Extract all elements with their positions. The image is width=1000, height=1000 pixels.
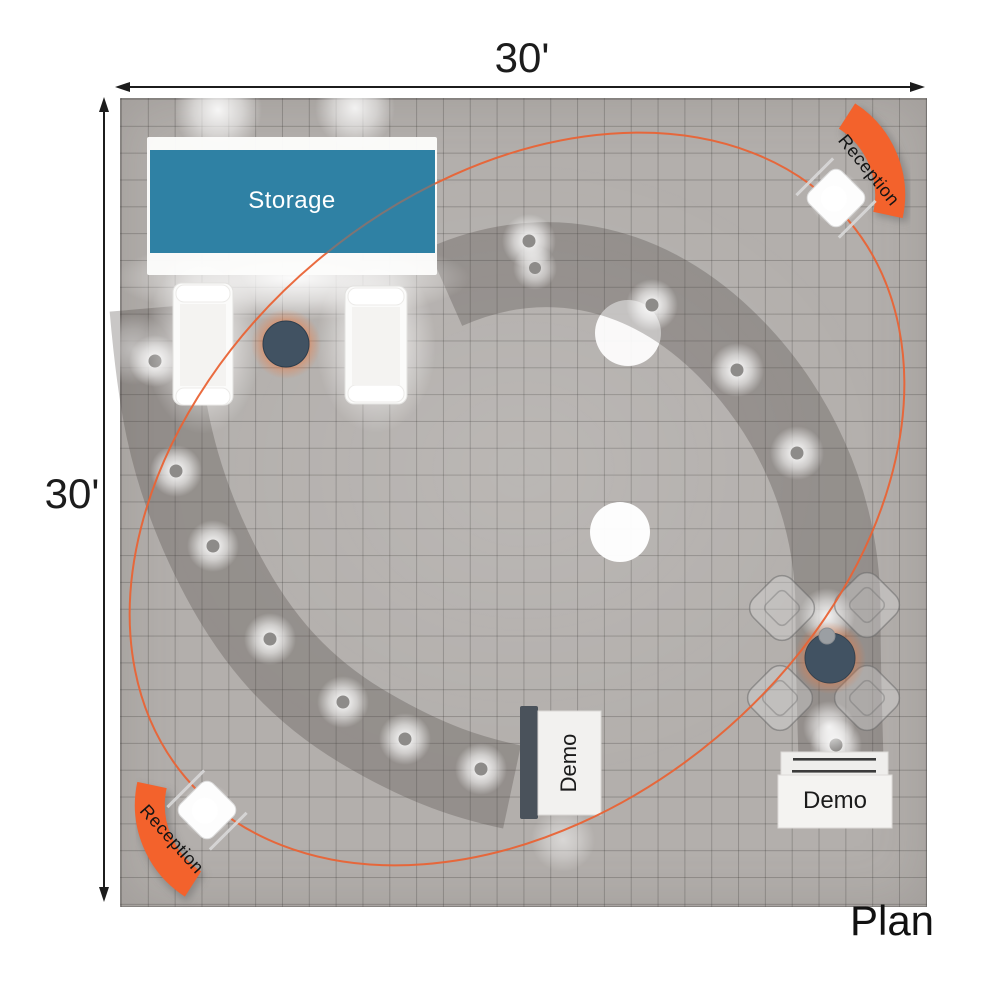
demo-shelf-line bbox=[792, 770, 876, 773]
arrowhead-right-icon bbox=[910, 82, 925, 92]
spotlight-dot bbox=[399, 733, 412, 746]
spotlight-dot bbox=[337, 696, 350, 709]
dimension-line-vertical bbox=[103, 106, 105, 892]
spotlight-dot bbox=[523, 235, 536, 248]
spotlight-dot bbox=[264, 633, 277, 646]
spotlight-dot bbox=[475, 763, 488, 776]
coffee-table-top bbox=[263, 321, 309, 367]
spotlight-dot bbox=[529, 262, 541, 274]
light-disc bbox=[590, 502, 650, 562]
spotlight bbox=[379, 713, 431, 765]
sofa-right bbox=[316, 257, 436, 433]
sofa-seat bbox=[352, 307, 400, 385]
storage-label: Storage bbox=[248, 189, 336, 213]
sofa-left bbox=[145, 254, 261, 434]
spotlight-dot bbox=[731, 364, 744, 377]
demo-right-label: Demo bbox=[803, 789, 867, 813]
wall-glow bbox=[315, 68, 395, 148]
plan-title: Plan bbox=[850, 900, 934, 942]
arrowhead-left-icon bbox=[115, 82, 130, 92]
dimension-line-horizontal bbox=[129, 86, 911, 88]
spotlight bbox=[317, 676, 369, 728]
arrowhead-down-icon bbox=[99, 887, 109, 902]
spotlight-dot bbox=[646, 299, 659, 312]
dimension-label-width: 30' bbox=[495, 37, 550, 79]
spotlight bbox=[770, 426, 824, 480]
sofa-seat bbox=[180, 304, 226, 386]
demo-screen-bar bbox=[520, 706, 538, 819]
spotlight-dot bbox=[791, 447, 804, 460]
spotlight bbox=[710, 343, 764, 397]
spotlight bbox=[150, 445, 202, 497]
spotlight bbox=[455, 743, 507, 795]
spotlight bbox=[513, 246, 557, 290]
booth-plan-canvas: 30' 30' Storage Demo Demo Reception Rece… bbox=[0, 0, 1000, 1000]
spotlight bbox=[244, 613, 296, 665]
dimension-label-height: 30' bbox=[45, 473, 100, 515]
spotlight bbox=[626, 279, 678, 331]
spotlight bbox=[187, 520, 239, 572]
sofa-armrest bbox=[348, 288, 404, 305]
spotlight-dot bbox=[207, 540, 220, 553]
coffee-table bbox=[251, 309, 321, 379]
sofa-armrest bbox=[348, 385, 404, 402]
meeting-table-accessory bbox=[819, 628, 835, 644]
spotlight-dot bbox=[170, 465, 183, 478]
demo-center-label: Demo bbox=[558, 734, 580, 793]
sofa-armrest bbox=[176, 285, 230, 302]
arrowhead-up-icon bbox=[99, 97, 109, 112]
demo-shelf-line bbox=[793, 758, 876, 761]
